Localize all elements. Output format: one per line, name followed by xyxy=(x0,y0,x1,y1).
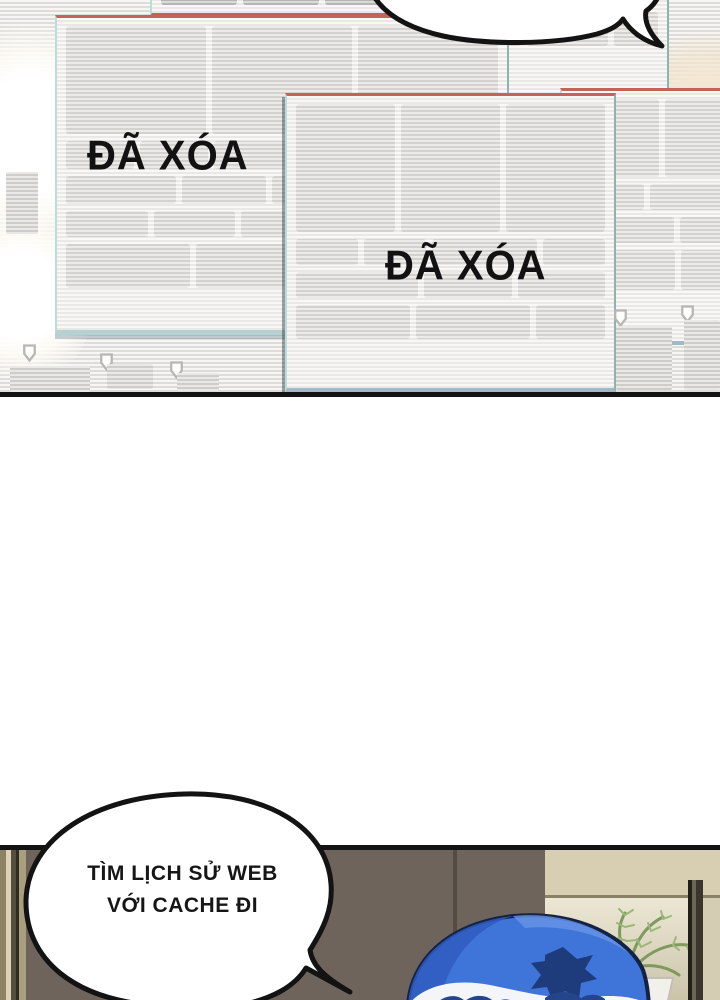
browser-window-deleted-2: ĐÃ XÓA xyxy=(285,93,616,393)
mini-block xyxy=(10,366,90,392)
mini-block xyxy=(616,326,672,390)
mini-block xyxy=(177,373,219,391)
character-blue-bandana xyxy=(395,910,665,1000)
deleted-stamp: ĐÃ XÓA xyxy=(385,243,547,290)
window-frame-post xyxy=(688,880,703,1000)
mini-block xyxy=(6,172,38,234)
map-pin-icon xyxy=(22,343,37,363)
speech-text-line1: TÌM LỊCH SỬ WEB xyxy=(55,858,310,890)
content-block xyxy=(161,0,237,5)
content-block xyxy=(243,0,319,5)
speech-bubble-top xyxy=(365,0,695,62)
comic-page: ĐÃ XÓA ĐÃ XÓA xyxy=(0,0,720,1000)
mini-block xyxy=(684,320,720,390)
window-right-edge xyxy=(703,898,720,1000)
mini-block xyxy=(107,364,153,389)
speech-text: TÌM LỊCH SỬ WEB VỚI CACHE ĐI xyxy=(55,858,310,922)
map-pin-icon xyxy=(613,308,628,328)
deleted-stamp: ĐÃ XÓA xyxy=(87,133,249,180)
speech-text-line2: VỚI CACHE ĐI xyxy=(55,890,310,922)
